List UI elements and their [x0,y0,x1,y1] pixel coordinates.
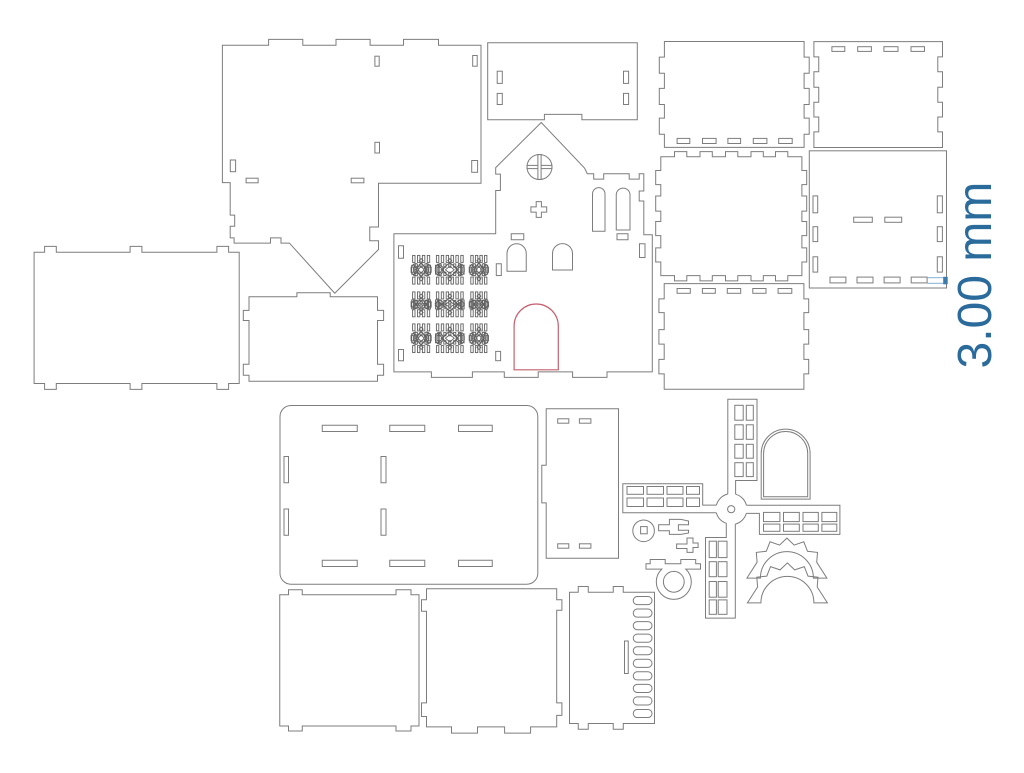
svg-text:3.00 mm: 3.00 mm [949,182,1002,369]
